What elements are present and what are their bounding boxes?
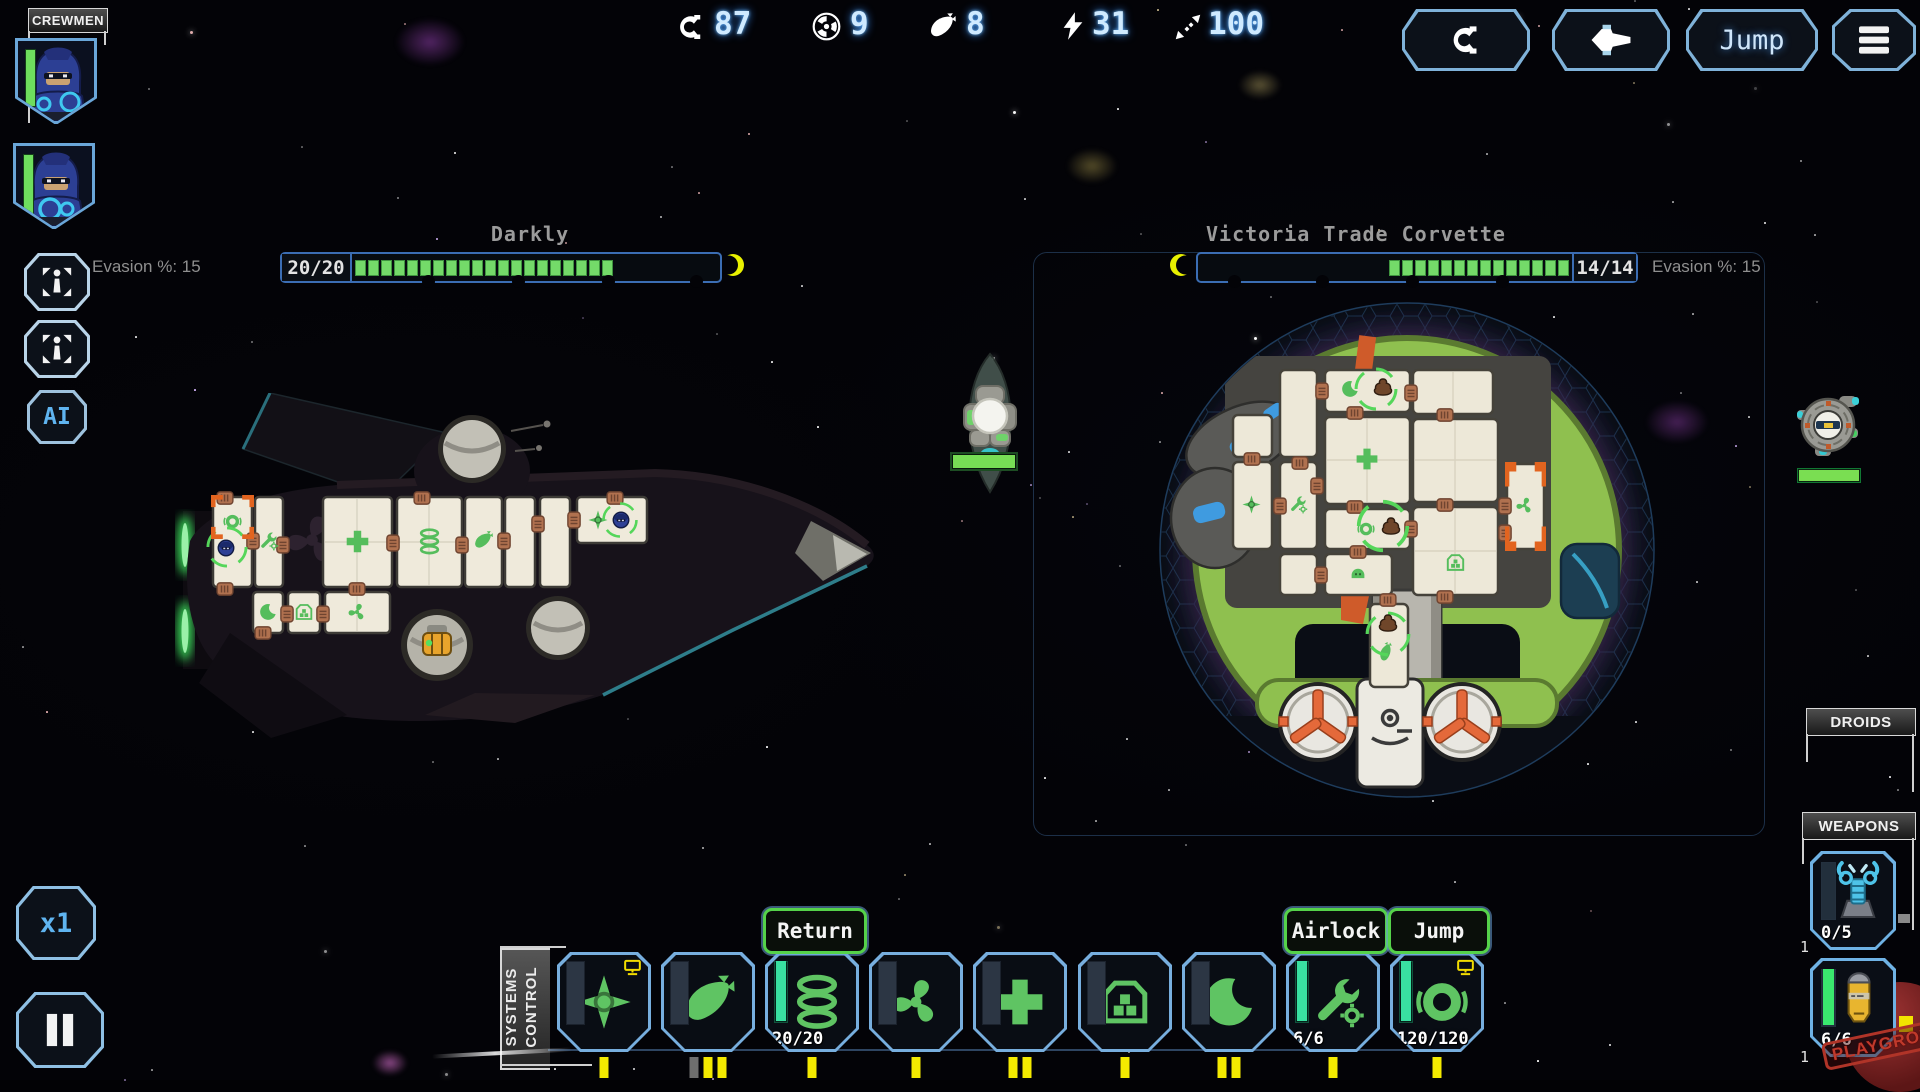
- energy-value: 31: [1092, 6, 1129, 42]
- cargo-droid[interactable]: [423, 625, 451, 655]
- speed-button[interactable]: x1: [16, 886, 96, 960]
- player-hull-bar: 20/20: [280, 252, 722, 283]
- missile-icon: [928, 13, 956, 41]
- enemy-hull-bar: 14/14: [1196, 252, 1638, 283]
- crew-portrait-2[interactable]: [13, 143, 95, 229]
- enemy-evasion: Evasion %: 15: [1652, 257, 1761, 277]
- weapon-charge-gauge: [1821, 862, 1836, 920]
- return-button[interactable]: Return: [763, 908, 867, 954]
- power-pips: [912, 1057, 921, 1078]
- docking-port: [1357, 679, 1423, 787]
- airlock-button[interactable]: Airlock: [1284, 908, 1388, 954]
- power-pips: [600, 1057, 609, 1078]
- system-missiles-button[interactable]: [661, 952, 755, 1052]
- power-pips: [1329, 1057, 1338, 1078]
- ship-button[interactable]: [1552, 9, 1670, 71]
- engine-turbine: [1279, 684, 1357, 760]
- jump-range-value: 100: [1208, 6, 1264, 42]
- enemy-ship-name: Victoria Trade Corvette: [1196, 222, 1516, 246]
- power-pips: [808, 1057, 817, 1078]
- jump-button-label: Jump: [1719, 25, 1784, 56]
- system-vents-button[interactable]: [869, 952, 963, 1052]
- menu-icon: [1857, 25, 1891, 55]
- player-shield-crescent: [722, 250, 748, 280]
- crew-member[interactable]: [218, 540, 233, 555]
- manned-station-icon: [623, 959, 642, 976]
- credits-icon: [676, 12, 706, 42]
- enemy-shield-crescent: [1166, 250, 1192, 280]
- laser-turret-icon: [1831, 860, 1885, 920]
- weapon-charge-gauge: [1821, 969, 1836, 1027]
- info-button-1[interactable]: [24, 253, 90, 311]
- player-ship[interactable]: [175, 393, 875, 738]
- droids-tag: DROIDS: [1806, 708, 1916, 736]
- player-ship-name: Darkly: [380, 222, 680, 246]
- info-icon: [40, 332, 74, 366]
- info-button-2[interactable]: [24, 320, 90, 378]
- enemy-hull-segments: [1386, 260, 1572, 276]
- jump-action-button[interactable]: Jump: [1388, 908, 1490, 954]
- airlock-gauge-value: 6/6: [1293, 1029, 1324, 1049]
- credits-value: 87: [714, 6, 751, 42]
- missile-value: 8: [966, 6, 985, 42]
- power-pips: [690, 1057, 727, 1078]
- crew-health-bar: [23, 154, 34, 216]
- missile-launcher-icon: [1833, 969, 1885, 1027]
- droid-health-bar: [1797, 468, 1861, 483]
- shuttle-health-bar: [950, 452, 1018, 471]
- system-storage-button[interactable]: [1078, 952, 1172, 1052]
- system-medbay-button[interactable]: [973, 952, 1067, 1052]
- weapon-count: 1: [1800, 938, 1809, 956]
- crewmen-tag: CREWMEN: [28, 8, 108, 33]
- galaxy-decoration: [395, 18, 465, 66]
- weapons-tag: WEAPONS: [1802, 812, 1916, 840]
- galaxy-decoration: [1238, 70, 1282, 100]
- jump-range-icon: [1174, 13, 1202, 41]
- ai-button-label: AI: [43, 404, 71, 430]
- system-airlock-button[interactable]: 6/6: [1286, 952, 1380, 1052]
- game-viewport: 87 9 8 31 100 Jump CREWMEN: [0, 0, 1920, 1080]
- player-hull-segments: [352, 260, 616, 276]
- pause-button[interactable]: [16, 992, 104, 1068]
- power-pips: [1218, 1057, 1241, 1078]
- jump-button[interactable]: Jump: [1686, 9, 1818, 71]
- nuclear-icon: [812, 12, 841, 41]
- system-engines-button[interactable]: 20/20: [765, 952, 859, 1052]
- crew-health-bar: [25, 49, 36, 107]
- system-quarters-button[interactable]: [1182, 952, 1276, 1052]
- weapon-count: 1: [1800, 1048, 1809, 1066]
- enemy-hull-value: 14/14: [1572, 254, 1636, 281]
- galaxy-decoration: [372, 1050, 408, 1076]
- jump-gauge-value: 120/120: [1397, 1029, 1469, 1049]
- system-jump-button[interactable]: 120/120: [1390, 952, 1484, 1052]
- menu-button[interactable]: [1832, 9, 1916, 71]
- power-pips: [1433, 1057, 1442, 1078]
- enemy-ship[interactable]: [1145, 292, 1670, 812]
- ai-button[interactable]: AI: [27, 390, 87, 444]
- ship-icon: [1589, 23, 1633, 57]
- energy-icon: [1058, 10, 1088, 42]
- pause-icon: [42, 1011, 78, 1049]
- player-hull-value: 20/20: [282, 254, 352, 281]
- nuclear-value: 9: [850, 6, 869, 42]
- speed-label: x1: [40, 908, 73, 939]
- engine-gauge-value: 20/20: [772, 1029, 823, 1049]
- crew-member[interactable]: [613, 512, 628, 527]
- engine-turbine: [1423, 684, 1501, 760]
- galaxy-decoration: [1066, 148, 1118, 184]
- shuttle[interactable]: [940, 350, 1040, 500]
- droid-unit[interactable]: [1795, 394, 1861, 460]
- weapon-ammo: 0/5: [1821, 923, 1852, 943]
- manned-station-icon: [1456, 959, 1475, 976]
- credits-icon: [1449, 23, 1483, 57]
- credits-button[interactable]: [1402, 9, 1530, 71]
- player-evasion: Evasion %: 15: [92, 257, 201, 277]
- system-shields-button[interactable]: [557, 952, 651, 1052]
- info-icon: [40, 265, 74, 299]
- power-pips: [1121, 1057, 1130, 1078]
- power-pips: [1009, 1057, 1032, 1078]
- weapon-slot-laser[interactable]: 0/5: [1810, 851, 1896, 950]
